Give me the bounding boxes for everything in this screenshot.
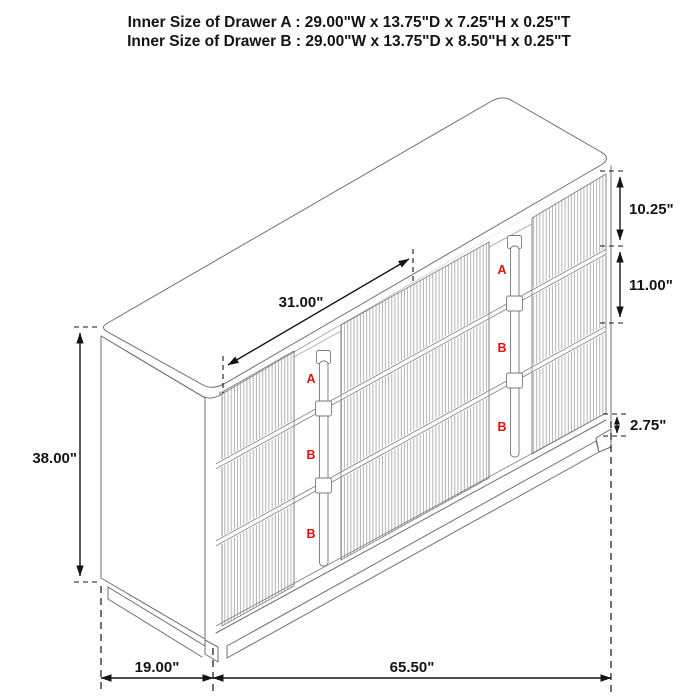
sideboard-left-panel xyxy=(101,336,205,639)
product-dimension-diagram: Inner Size of Drawer A : 29.00"W x 13.75… xyxy=(0,0,700,700)
fluted-drawer-bank-left xyxy=(222,351,294,626)
dimension-base-height: 2.75" xyxy=(603,414,666,436)
dim-drawer-a-height-label: 10.25" xyxy=(629,201,674,218)
handle-right-bracket-top xyxy=(507,296,523,311)
dim-top-span-label: 31.00" xyxy=(279,294,324,311)
dim-drawer-b-height-label: 11.00" xyxy=(629,277,673,294)
sideboard-dimension-drawing: Inner Size of Drawer A : 29.00"W x 13.75… xyxy=(0,0,700,700)
diagram-title: Inner Size of Drawer A : 29.00"W x 13.75… xyxy=(127,14,571,50)
fluted-drawer-bank-right xyxy=(532,174,606,454)
drawer-label-left-b1: B xyxy=(306,448,315,462)
front-right-foot xyxy=(596,429,611,452)
dimension-overall-height: 38.00" xyxy=(32,327,100,582)
diagram-title-line-2: Inner Size of Drawer B : 29.00"W x 13.75… xyxy=(127,33,571,50)
handle-right-bracket-bottom xyxy=(507,373,523,388)
handle-left-bracket-bottom xyxy=(316,478,332,493)
diagram-title-line-1: Inner Size of Drawer A : 29.00"W x 13.75… xyxy=(128,14,571,31)
handle-left-bracket-top xyxy=(316,401,332,416)
dim-base-height-label: 2.75" xyxy=(630,417,666,434)
drawer-label-left-a: A xyxy=(306,372,315,386)
dim-overall-height-label: 38.00" xyxy=(32,450,77,467)
drawer-label-right-b2: B xyxy=(497,420,506,434)
drawer-label-right-b1: B xyxy=(497,341,506,355)
sideboard-drawing: A B B A B B xyxy=(101,98,611,662)
drawer-label-right-a: A xyxy=(497,263,506,277)
dim-overall-depth-label: 19.00" xyxy=(135,659,180,676)
front-left-foot xyxy=(205,640,218,662)
handle-right-bar xyxy=(511,246,520,457)
handle-left-bar xyxy=(320,361,329,566)
drawer-label-left-b2: B xyxy=(306,527,315,541)
dim-overall-width-label: 65.50" xyxy=(390,659,435,676)
